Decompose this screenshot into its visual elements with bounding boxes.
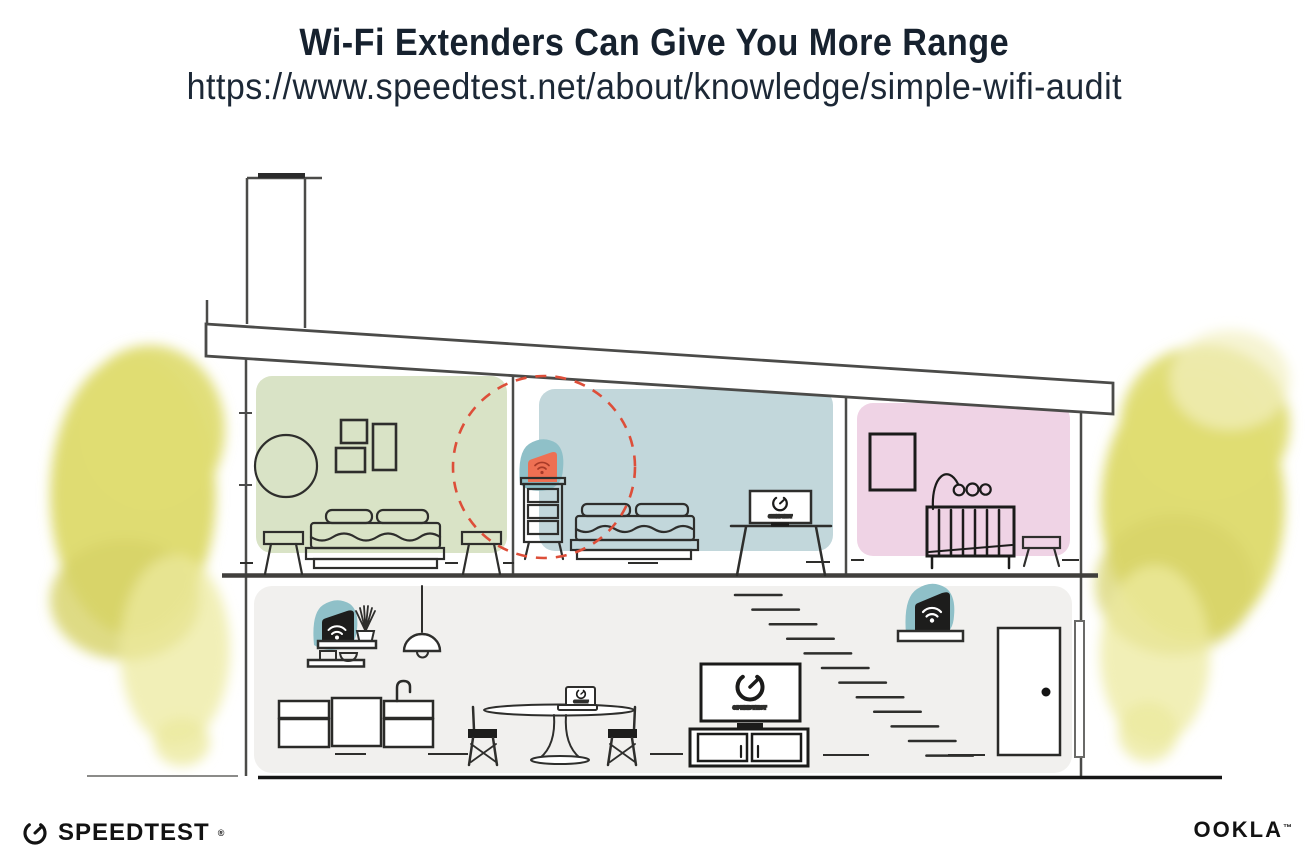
tv-screen-label: SPEEDTEST xyxy=(769,515,793,519)
living-tv: SPEEDTEST xyxy=(701,664,800,728)
ookla-logo: OOKLA™ xyxy=(1194,817,1292,843)
house-illustration: SPEEDTEST xyxy=(0,0,1308,861)
speedtest-wordmark: SPEEDTEST xyxy=(58,819,210,847)
tv-cabinet xyxy=(690,729,808,766)
bedroom-tv: SPEEDTEST xyxy=(750,491,811,527)
tv-screen-label: SPEEDTEST xyxy=(733,705,767,711)
downspout xyxy=(1075,621,1084,757)
registered-mark: ® xyxy=(218,828,225,838)
room-bg-green-bedroom xyxy=(256,376,507,553)
chimney xyxy=(247,176,322,329)
shelf-board xyxy=(318,641,376,648)
shelf-board xyxy=(898,631,963,641)
front-door xyxy=(998,628,1060,755)
trademark-mark: ™ xyxy=(1283,823,1292,833)
living-area: SPEEDTEST xyxy=(690,664,808,766)
speedtest-logo: SPEEDTEST® xyxy=(20,819,224,847)
speedtest-gauge-icon xyxy=(20,820,50,846)
foliage-right xyxy=(1095,330,1290,762)
laptop-screen-label: SPEEDTEST xyxy=(574,701,589,704)
door-knob xyxy=(1042,688,1051,697)
foliage-left xyxy=(50,345,230,766)
ookla-wordmark: OOKLA xyxy=(1194,817,1283,842)
infographic-page: Wi-Fi Extenders Can Give You More Range … xyxy=(0,0,1308,861)
